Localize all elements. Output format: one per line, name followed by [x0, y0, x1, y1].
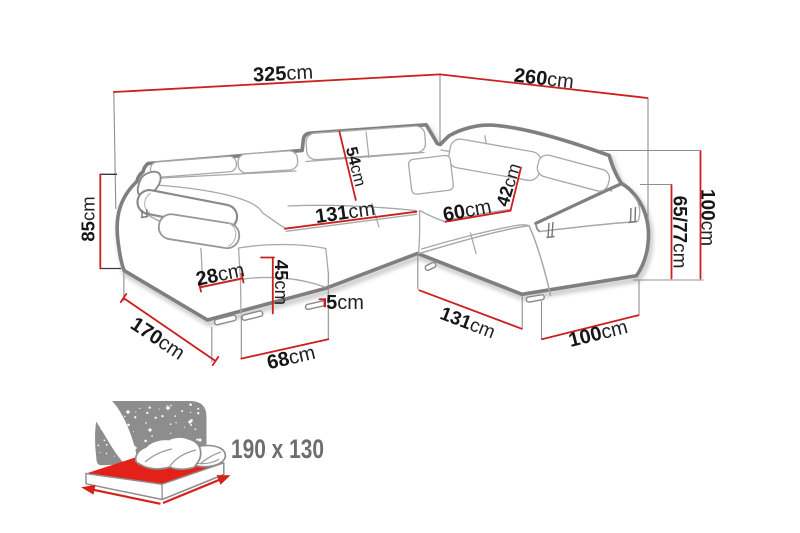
svg-text:190 x 130: 190 x 130	[231, 434, 324, 464]
svg-text:131cm: 131cm	[437, 303, 498, 343]
svg-text:5cm: 5cm	[326, 292, 364, 314]
svg-text:68cm: 68cm	[265, 342, 318, 374]
svg-text:65/77cm: 65/77cm	[669, 196, 690, 269]
svg-text:100cm: 100cm	[697, 189, 718, 246]
svg-text:45cm: 45cm	[271, 260, 292, 305]
svg-text:325cm: 325cm	[252, 61, 313, 86]
svg-text:100cm: 100cm	[566, 316, 630, 352]
svg-text:85cm: 85cm	[78, 196, 99, 241]
svg-text:260cm: 260cm	[513, 65, 575, 94]
